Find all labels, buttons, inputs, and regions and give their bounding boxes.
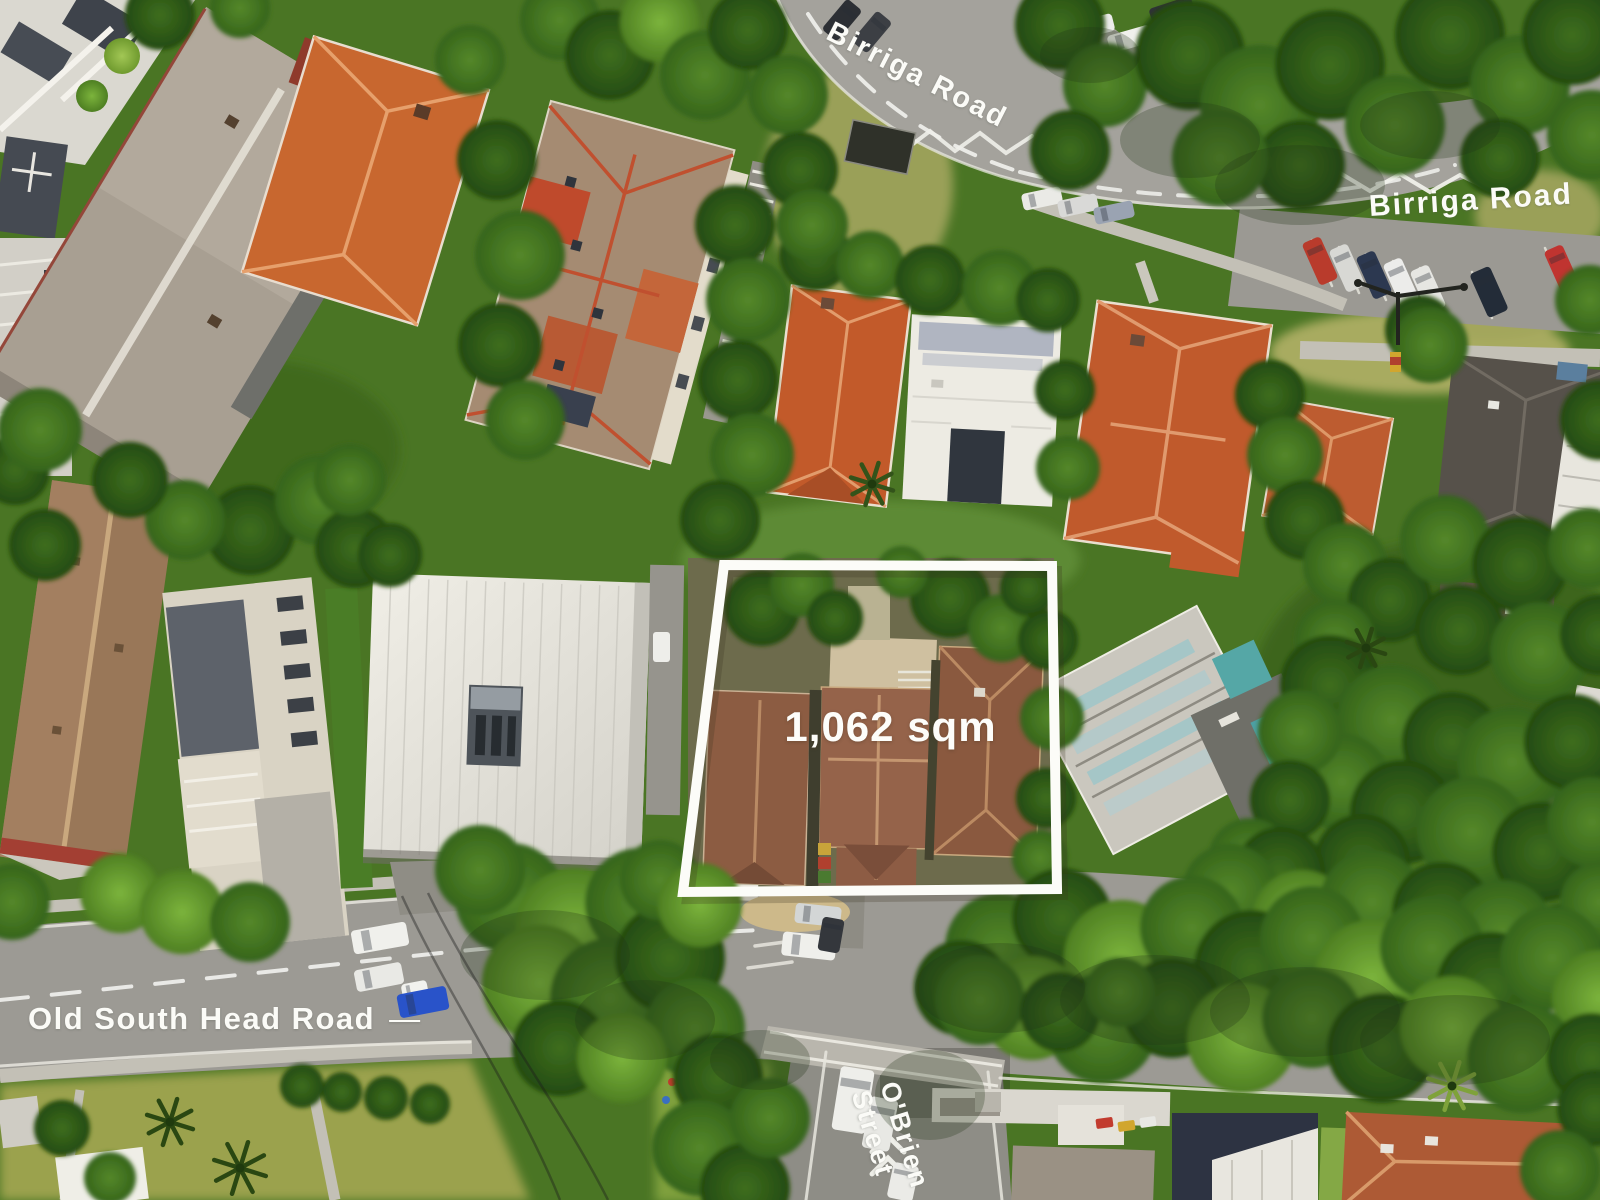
tree-canopy (706, 258, 790, 342)
tree-canopy (658, 863, 742, 947)
tree-canopy (680, 480, 760, 560)
tree-canopy (895, 245, 965, 315)
road-label-old-south-head: Old South Head Road— (28, 1001, 422, 1037)
tree-canopy (280, 1064, 324, 1108)
tree-canopy (314, 444, 386, 516)
tree-canopy (698, 340, 778, 420)
big-white-roof-building (363, 573, 651, 873)
tree-canopy (807, 590, 863, 646)
tree-canopy (0, 388, 82, 472)
tree-canopy (92, 442, 168, 518)
tree-canopy (748, 55, 828, 135)
navy-building (1172, 1113, 1318, 1200)
tree-shadow (1360, 995, 1550, 1085)
tree-shadow (915, 943, 1085, 1033)
tree-canopy (9, 509, 81, 581)
aerial-photo-stage: Birriga Road Birriga Road 1,062 sqm Old … (0, 0, 1600, 1200)
tree-canopy (210, 882, 290, 962)
tree-canopy (836, 231, 904, 299)
tree-canopy (1030, 110, 1110, 190)
tree-canopy (1016, 768, 1076, 828)
road-label-dash: — (389, 1001, 422, 1036)
tree-canopy (457, 120, 537, 200)
tree-canopy (1036, 436, 1100, 500)
tree-canopy (1016, 268, 1080, 332)
tree-shadow (710, 1030, 810, 1090)
tree-canopy (485, 380, 565, 460)
road-label-old-south-head-text: Old South Head Road (28, 1001, 375, 1036)
tree-shadow (575, 980, 715, 1060)
tree-canopy (34, 1100, 90, 1156)
tree-canopy (322, 1072, 362, 1112)
lot-area-label: 1,062 sqm (724, 703, 1057, 751)
tree-canopy (475, 210, 565, 300)
tree-canopy (364, 1076, 408, 1120)
tree-canopy (1035, 360, 1095, 420)
tree-canopy (358, 523, 422, 587)
tree-canopy (435, 825, 525, 915)
tree-canopy (410, 1084, 450, 1124)
tree-shadow (1040, 27, 1140, 83)
tree-canopy (776, 189, 848, 261)
tree-canopy (1392, 307, 1468, 383)
tree-canopy (435, 25, 505, 95)
orange-roof-house-e (1062, 301, 1274, 577)
laneway-west-of-lot (646, 565, 684, 816)
tree-canopy (730, 1078, 810, 1158)
tree-canopy (458, 303, 542, 387)
tree-shadow (460, 910, 630, 1000)
tree-shadow (1360, 91, 1500, 159)
tree-canopy (695, 185, 775, 265)
tree-shadow (1215, 145, 1385, 225)
